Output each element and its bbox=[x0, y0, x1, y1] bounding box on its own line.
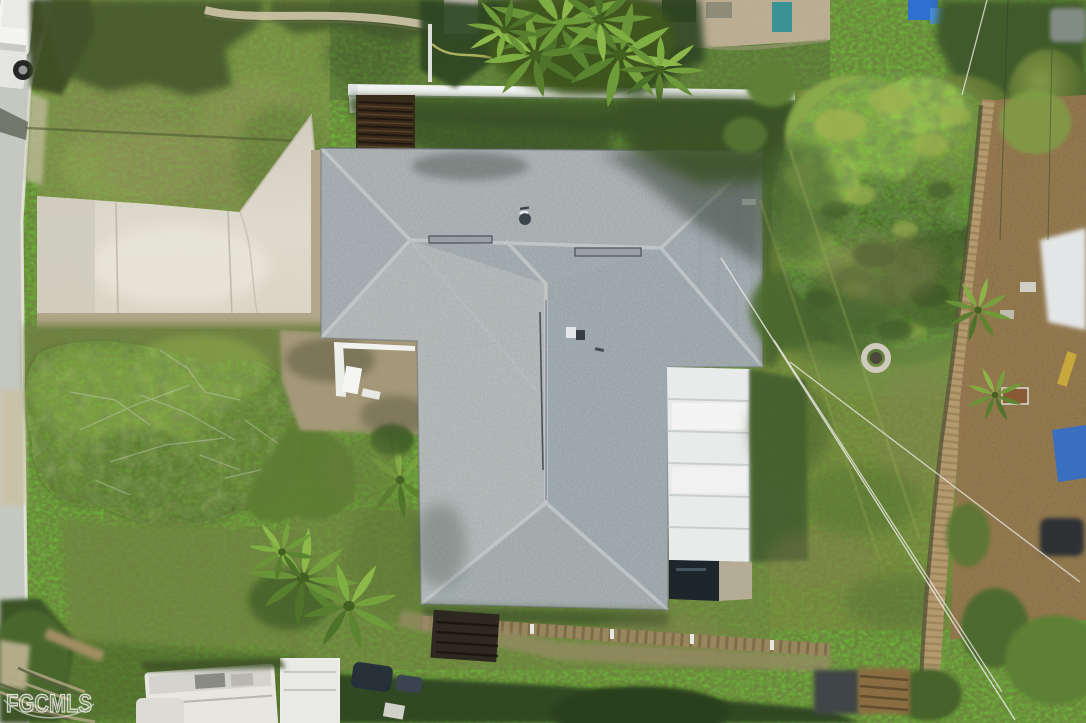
svg-text:FGCMLS: FGCMLS bbox=[6, 690, 92, 718]
